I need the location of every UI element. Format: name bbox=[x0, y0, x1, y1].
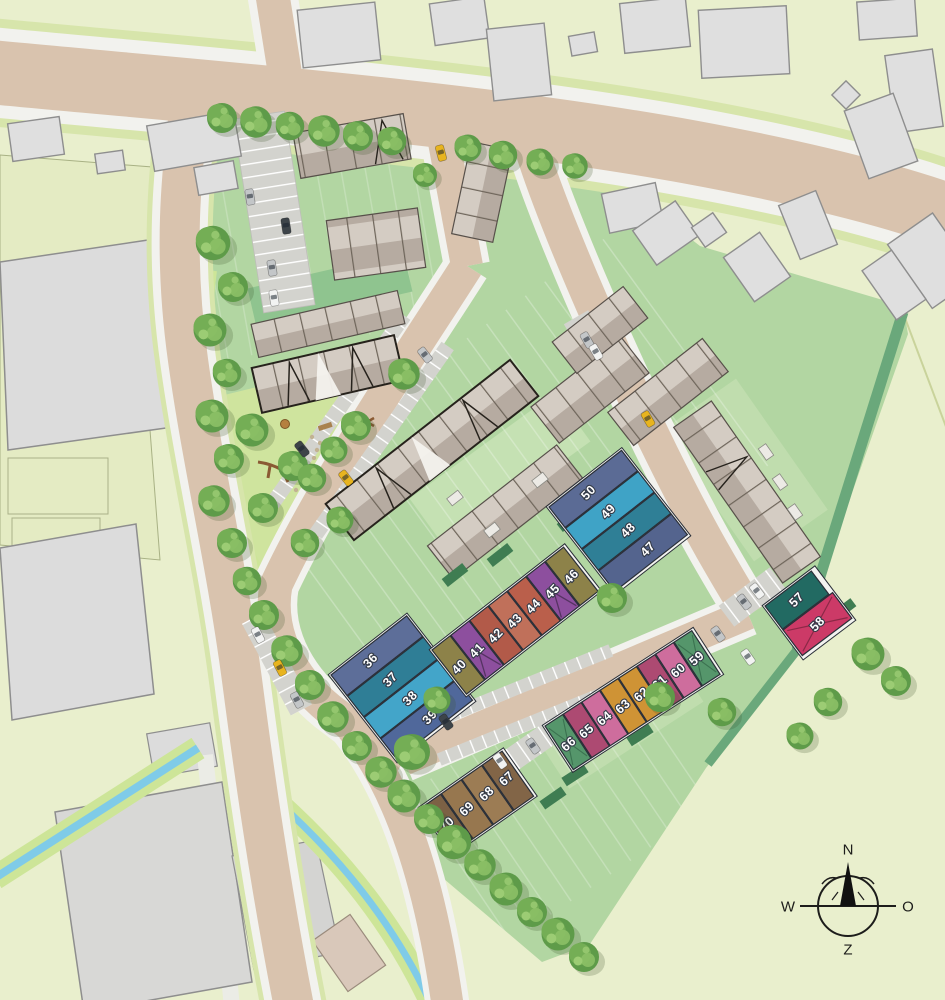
compass-east-label: O bbox=[902, 899, 914, 916]
compass-west-label: W bbox=[781, 899, 796, 916]
housing-row bbox=[326, 208, 425, 280]
site-plan-svg: 36 37 38 39 50 49 48 47 40 41 42 43 44 4… bbox=[0, 0, 945, 1000]
site-plan-map: 36 37 38 39 50 49 48 47 40 41 42 43 44 4… bbox=[0, 0, 945, 1000]
industrial-building bbox=[0, 240, 166, 450]
industrial-building bbox=[0, 524, 154, 720]
compass-north-label: N bbox=[843, 842, 854, 859]
compass-south-label: Z bbox=[843, 942, 852, 959]
road-stub-north bbox=[272, 0, 286, 80]
play-mushroom bbox=[281, 420, 290, 429]
